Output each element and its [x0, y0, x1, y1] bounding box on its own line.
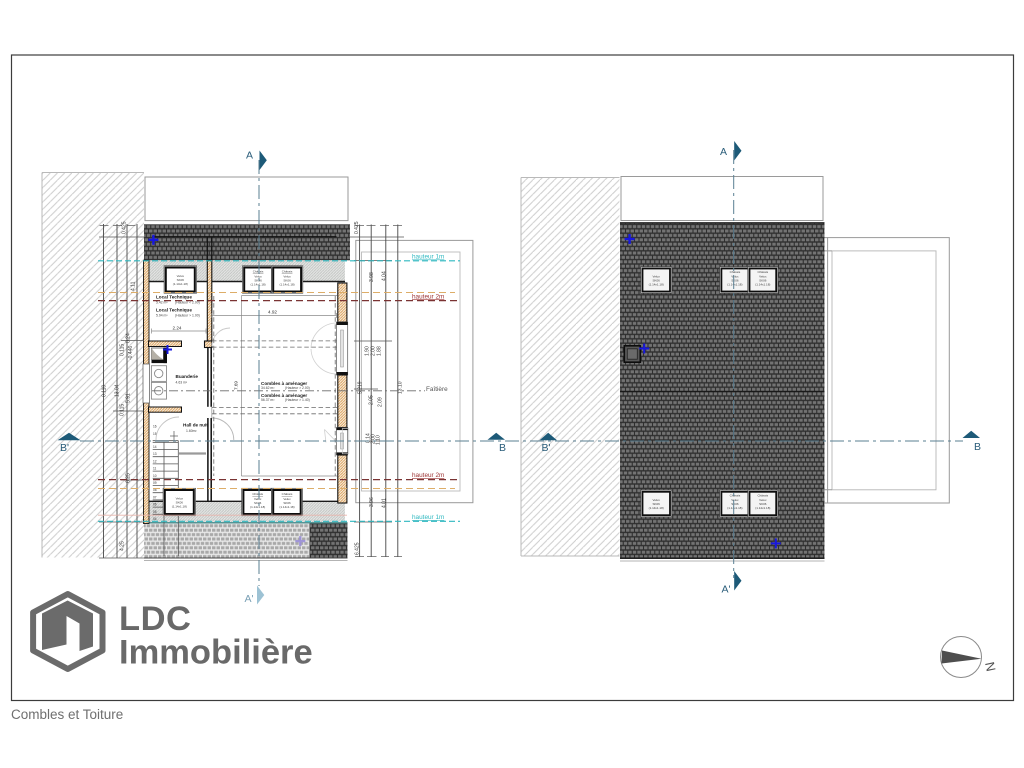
- svg-text:4.04: 4.04: [381, 271, 387, 281]
- svg-text:(1.14x1.18): (1.14x1.18): [173, 282, 188, 286]
- svg-text:(Hauteur > 1.00): (Hauteur > 1.00): [175, 314, 200, 318]
- svg-text:Châssis: Châssis: [282, 270, 293, 274]
- svg-text:A: A: [720, 146, 727, 158]
- svg-text:13: 13: [153, 452, 157, 456]
- svg-text:B: B: [974, 441, 981, 453]
- svg-text:(1.14x1.18): (1.14x1.18): [755, 506, 770, 510]
- svg-text:0.425: 0.425: [354, 221, 360, 234]
- svg-text:(1.14x1.18): (1.14x1.18): [279, 505, 294, 509]
- svg-text:A': A': [245, 593, 254, 605]
- svg-text:56.37 m²: 56.37 m²: [261, 398, 275, 402]
- svg-text:(1.14x1.18): (1.14x1.18): [250, 505, 265, 509]
- svg-text:0.24: 0.24: [126, 333, 132, 343]
- svg-text:05: 05: [153, 510, 157, 514]
- svg-text:2.24: 2.24: [173, 326, 182, 331]
- svg-text:Châssis: Châssis: [282, 492, 293, 496]
- svg-text:13.04: 13.04: [115, 384, 121, 397]
- svg-text:Châssis: Châssis: [253, 270, 264, 274]
- svg-text:04: 04: [153, 517, 157, 521]
- svg-text:3.96: 3.96: [369, 497, 375, 507]
- svg-text:1.60m²: 1.60m²: [186, 429, 197, 433]
- svg-text:5.219: 5.219: [358, 381, 364, 394]
- svg-text:Local Technique: Local Technique: [156, 295, 192, 300]
- svg-text:0.110: 0.110: [102, 385, 108, 397]
- svg-text:hauteur 2m: hauteur 2m: [412, 293, 444, 300]
- svg-text:(1.14x1.18): (1.14x1.18): [727, 506, 742, 510]
- svg-text:2.05: 2.05: [369, 395, 375, 405]
- svg-text:7.69: 7.69: [234, 381, 239, 390]
- svg-text:4.01: 4.01: [381, 498, 387, 508]
- svg-text:06: 06: [153, 503, 157, 507]
- svg-text:(1.14x1.18): (1.14x1.18): [251, 283, 266, 287]
- svg-text:(1.14x1.18): (1.14x1.18): [727, 283, 742, 287]
- svg-text:4.92: 4.92: [268, 310, 277, 315]
- svg-text:Immobilière: Immobilière: [119, 634, 313, 672]
- svg-text:6.425: 6.425: [355, 542, 361, 555]
- svg-text:-0.446: -0.446: [128, 346, 134, 360]
- svg-text:2.09: 2.09: [378, 397, 384, 407]
- svg-text:07: 07: [153, 495, 157, 499]
- svg-text:4.11: 4.11: [131, 281, 137, 291]
- svg-text:Châssis: Châssis: [730, 493, 741, 497]
- svg-text:A: A: [246, 150, 253, 162]
- svg-text:(1.14x1.18): (1.14x1.18): [172, 505, 187, 509]
- svg-text:14: 14: [153, 445, 157, 449]
- svg-text:hauteur 2m: hauteur 2m: [412, 472, 444, 479]
- svg-text:13.10: 13.10: [398, 381, 404, 394]
- svg-text:10: 10: [153, 474, 157, 478]
- svg-text:(1.14x1.18): (1.14x1.18): [280, 283, 295, 287]
- svg-text:6.25: 6.25: [126, 473, 132, 483]
- svg-text:34.62 m²: 34.62 m²: [261, 386, 275, 390]
- svg-text:Châssis: Châssis: [252, 492, 263, 496]
- svg-text:4.63 m²: 4.63 m²: [176, 381, 188, 385]
- svg-text:11: 11: [153, 467, 157, 471]
- svg-text:Hall de nuit: Hall de nuit: [183, 423, 208, 428]
- svg-text:0.115: 0.115: [120, 344, 126, 356]
- svg-text:A': A': [722, 584, 731, 596]
- svg-text:(1.14x1.18): (1.14x1.18): [649, 506, 664, 510]
- svg-text:5.94 m²: 5.94 m²: [156, 314, 168, 318]
- svg-text:1.10: 1.10: [376, 435, 382, 445]
- svg-text:Local Technique: Local Technique: [156, 308, 192, 313]
- svg-text:09: 09: [153, 481, 157, 485]
- svg-text:Buanderie: Buanderie: [176, 374, 199, 379]
- svg-text:1.88: 1.88: [377, 346, 383, 356]
- svg-text:3.98: 3.98: [369, 272, 375, 282]
- svg-text:Châssis: Châssis: [757, 270, 768, 274]
- svg-text:(1.14x1.18): (1.14x1.18): [755, 283, 770, 287]
- svg-text:0.115: 0.115: [120, 404, 126, 416]
- svg-text:(Hauteur > 1.40): (Hauteur > 1.40): [285, 398, 310, 402]
- svg-text:B': B': [60, 442, 69, 454]
- svg-text:5.91: 5.91: [126, 393, 132, 403]
- svg-text:Faîtière: Faîtière: [426, 386, 448, 393]
- svg-text:(Hauteur > 2.00): (Hauteur > 2.00): [285, 386, 310, 390]
- svg-text:B': B': [542, 442, 551, 454]
- svg-text:(1.14x1.18): (1.14x1.18): [649, 283, 664, 287]
- svg-text:0.425: 0.425: [122, 221, 128, 234]
- svg-text:LDC: LDC: [119, 600, 191, 638]
- svg-text:Châssis: Châssis: [730, 270, 741, 274]
- svg-text:Châssis: Châssis: [757, 493, 768, 497]
- svg-text:4.25: 4.25: [120, 541, 126, 551]
- svg-text:16: 16: [153, 425, 157, 429]
- svg-text:B: B: [499, 442, 506, 454]
- svg-text:hauteur 1m: hauteur 1m: [412, 514, 444, 521]
- svg-text:12: 12: [153, 459, 157, 463]
- svg-text:hauteur 1m: hauteur 1m: [412, 254, 444, 261]
- svg-text:Combles et Toiture: Combles et Toiture: [11, 707, 123, 722]
